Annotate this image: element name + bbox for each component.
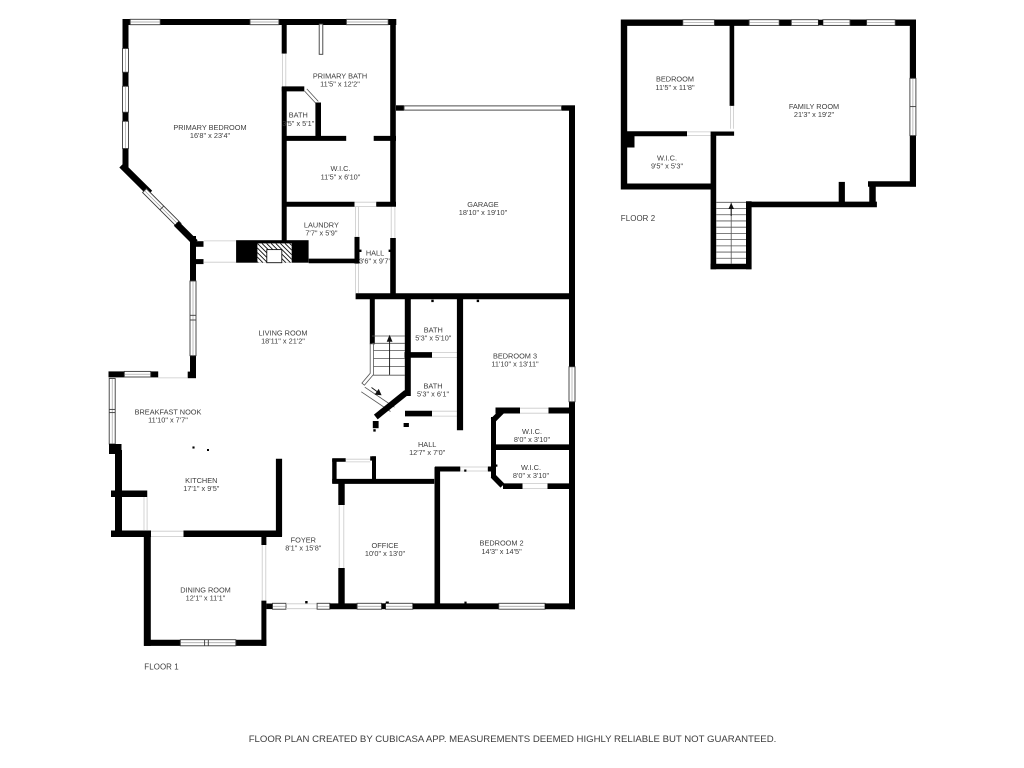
svg-text:12'7" x 7'0": 12'7" x 7'0" xyxy=(409,448,446,457)
svg-text:10'0" x 13'0": 10'0" x 13'0" xyxy=(365,549,406,558)
svg-text:8'1" x 15'8": 8'1" x 15'8" xyxy=(285,544,322,553)
svg-text:9'5" x 5'3": 9'5" x 5'3" xyxy=(651,162,684,171)
svg-text:18'11" x 21'2": 18'11" x 21'2" xyxy=(261,337,305,346)
svg-text:FLOOR 1: FLOOR 1 xyxy=(144,663,178,672)
svg-text:17'1" x 9'5": 17'1" x 9'5" xyxy=(183,484,220,493)
svg-text:11'5" x 6'10": 11'5" x 6'10" xyxy=(321,172,361,181)
svg-text:11'5" x 11'8": 11'5" x 11'8" xyxy=(655,83,695,92)
svg-text:18'10" x 19'10": 18'10" x 19'10" xyxy=(459,208,508,217)
svg-text:12'1" x 11'1": 12'1" x 11'1" xyxy=(186,594,226,603)
svg-text:14'3" x 14'5": 14'3" x 14'5" xyxy=(481,547,522,556)
svg-text:8'0" x 3'10": 8'0" x 3'10" xyxy=(514,435,551,444)
svg-text:8'0" x 3'10": 8'0" x 3'10" xyxy=(513,471,550,480)
svg-text:5'3" x 6'1": 5'3" x 6'1" xyxy=(417,390,450,399)
svg-text:11'10" x 7'7": 11'10" x 7'7" xyxy=(148,416,188,425)
svg-text:16'8" x 23'4": 16'8" x 23'4" xyxy=(190,131,231,140)
svg-text:3'6" x 9'7": 3'6" x 9'7" xyxy=(359,257,392,266)
svg-text:21'3" x 19'2": 21'3" x 19'2" xyxy=(794,110,835,119)
svg-text:5'3" x 5'10": 5'3" x 5'10" xyxy=(415,334,452,343)
svg-text:7'7" x 5'9": 7'7" x 5'9" xyxy=(305,229,338,238)
svg-text:FLOOR 2: FLOOR 2 xyxy=(621,214,655,223)
svg-text:3'5" x 5'1": 3'5" x 5'1" xyxy=(282,119,315,128)
svg-text:11'5" x 12'2": 11'5" x 12'2" xyxy=(320,80,360,89)
svg-text:11'10" x 13'11": 11'10" x 13'11" xyxy=(491,360,539,369)
svg-text:FLOOR PLAN CREATED BY CUBICASA: FLOOR PLAN CREATED BY CUBICASA APP. MEAS… xyxy=(249,734,777,745)
